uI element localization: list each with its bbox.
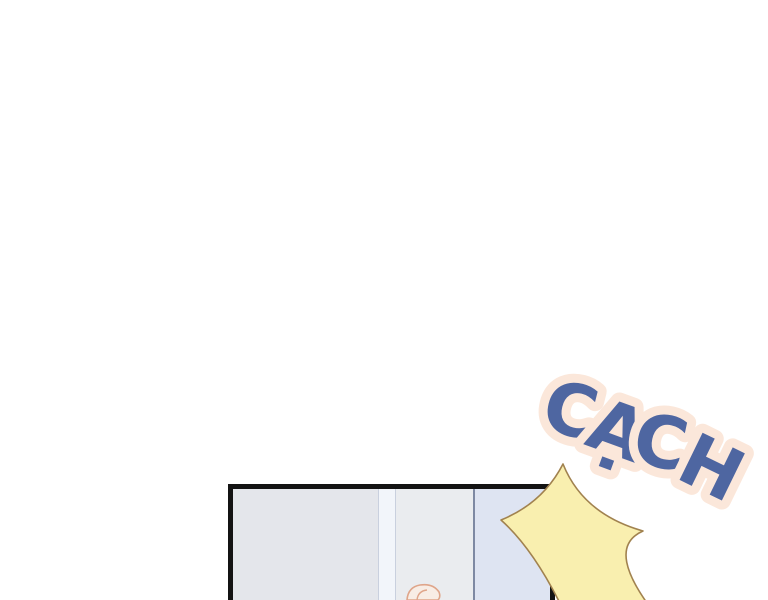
comic-page: CẠCH bbox=[0, 0, 768, 600]
sfx-text: CẠCH bbox=[525, 357, 756, 519]
head-outline bbox=[407, 585, 440, 600]
character-head-top bbox=[403, 583, 451, 600]
sfx-text-group: CẠCH bbox=[525, 357, 756, 519]
panel-wall-right bbox=[475, 489, 550, 600]
panel-door-edge-strip bbox=[378, 489, 396, 600]
panel-wall-left bbox=[233, 489, 378, 600]
comic-panel bbox=[228, 484, 555, 600]
